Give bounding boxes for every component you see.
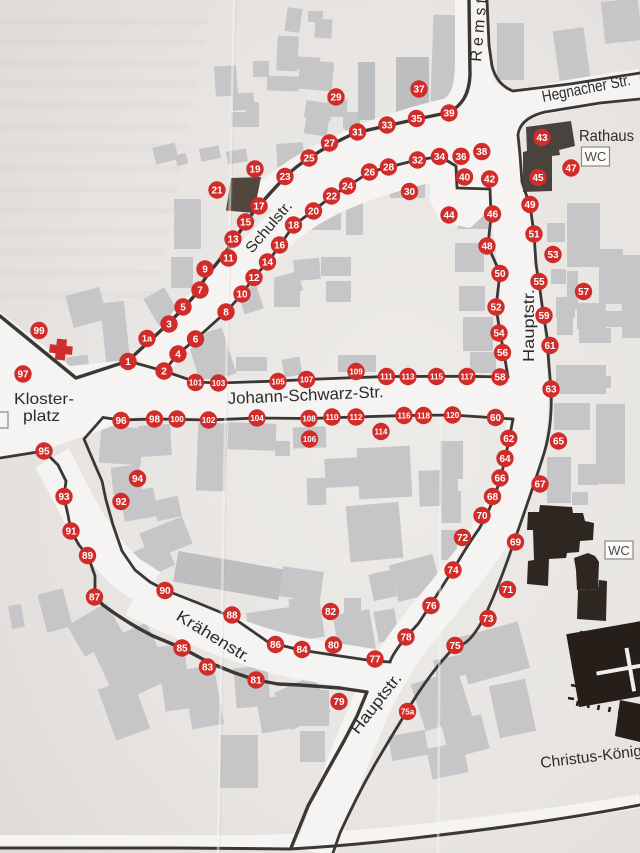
svg-text:27: 27 (324, 139, 336, 150)
svg-text:29: 29 (330, 93, 342, 104)
svg-text:42: 42 (484, 175, 496, 186)
svg-text:116: 116 (398, 411, 411, 420)
svg-text:3: 3 (166, 320, 172, 331)
svg-text:Rathaus: Rathaus (579, 128, 634, 145)
svg-text:2: 2 (161, 367, 167, 378)
svg-text:89: 89 (82, 551, 94, 562)
svg-text:36: 36 (455, 152, 467, 163)
svg-text:5: 5 (180, 303, 186, 314)
svg-text:13: 13 (227, 235, 239, 246)
svg-text:66: 66 (494, 473, 506, 484)
svg-text:115: 115 (430, 372, 443, 381)
svg-text:95: 95 (38, 447, 50, 458)
svg-text:104: 104 (250, 414, 264, 423)
svg-text:55: 55 (533, 277, 545, 288)
svg-text:56: 56 (497, 348, 509, 359)
svg-text:33: 33 (381, 121, 393, 132)
svg-text:83: 83 (202, 663, 214, 674)
svg-text:73: 73 (482, 614, 494, 625)
svg-text:112: 112 (350, 413, 363, 422)
svg-text:71: 71 (502, 585, 514, 596)
svg-text:Kloster-: Kloster- (14, 391, 74, 408)
svg-text:40: 40 (459, 173, 471, 184)
svg-text:94: 94 (132, 474, 144, 485)
svg-text:14: 14 (262, 258, 274, 269)
svg-text:39: 39 (443, 109, 455, 120)
svg-text:109: 109 (349, 367, 363, 376)
svg-text:30: 30 (404, 187, 416, 198)
svg-text:80: 80 (328, 641, 340, 652)
svg-text:110: 110 (326, 413, 339, 422)
svg-text:98: 98 (149, 415, 161, 426)
svg-text:24: 24 (342, 182, 354, 193)
svg-text:23: 23 (279, 172, 291, 183)
svg-text:53: 53 (547, 250, 559, 261)
svg-text:47: 47 (565, 164, 577, 175)
svg-text:platz: platz (23, 408, 60, 425)
svg-text:117: 117 (461, 372, 474, 381)
svg-text:59: 59 (538, 311, 550, 322)
svg-text:78: 78 (400, 633, 412, 644)
svg-text:51: 51 (528, 230, 540, 241)
svg-text:37: 37 (413, 85, 425, 96)
svg-text:4: 4 (175, 350, 181, 361)
svg-text:69: 69 (510, 538, 522, 549)
svg-text:32: 32 (412, 156, 424, 167)
svg-text:75: 75 (449, 641, 461, 652)
svg-text:120: 120 (446, 411, 460, 420)
svg-text:58: 58 (494, 373, 506, 384)
svg-text:61: 61 (544, 341, 556, 352)
svg-text:68: 68 (487, 492, 499, 503)
svg-text:10: 10 (236, 290, 248, 301)
svg-text:25: 25 (303, 154, 315, 165)
svg-text:17: 17 (253, 202, 265, 213)
svg-text:81: 81 (250, 676, 262, 687)
svg-text:113: 113 (402, 372, 415, 381)
svg-text:11: 11 (223, 254, 234, 265)
svg-text:19: 19 (249, 165, 261, 176)
svg-text:21: 21 (211, 186, 223, 197)
svg-text:Hauptstr.: Hauptstr. (521, 289, 538, 362)
svg-text:76: 76 (425, 601, 437, 612)
svg-text:102: 102 (202, 416, 216, 425)
svg-text:64: 64 (499, 454, 511, 465)
svg-text:114: 114 (375, 427, 388, 436)
svg-text:28: 28 (383, 163, 395, 174)
svg-text:111: 111 (380, 372, 393, 381)
svg-text:103: 103 (212, 379, 226, 388)
svg-text:87: 87 (89, 593, 101, 604)
svg-text:106: 106 (303, 435, 317, 444)
svg-text:85: 85 (176, 644, 188, 655)
svg-text:34: 34 (434, 152, 446, 163)
svg-text:70: 70 (476, 511, 488, 522)
svg-text:49: 49 (524, 200, 536, 211)
svg-text:54: 54 (493, 329, 505, 340)
svg-text:65: 65 (553, 437, 565, 448)
svg-text:79: 79 (333, 697, 345, 708)
svg-text:72: 72 (457, 533, 469, 544)
svg-text:52: 52 (490, 303, 502, 314)
svg-text:60: 60 (490, 413, 502, 424)
svg-text:75a: 75a (401, 707, 415, 716)
svg-text:26: 26 (364, 168, 376, 179)
svg-text:74: 74 (447, 566, 459, 577)
svg-text:16: 16 (274, 241, 286, 252)
svg-text:18: 18 (288, 221, 300, 232)
svg-text:1: 1 (125, 357, 131, 368)
svg-text:44: 44 (443, 211, 455, 222)
svg-text:99: 99 (33, 326, 45, 337)
svg-text:31: 31 (352, 128, 364, 139)
svg-text:62: 62 (503, 434, 515, 445)
svg-text:1a: 1a (142, 333, 153, 343)
svg-text:45: 45 (532, 173, 544, 184)
svg-text:97: 97 (17, 370, 29, 381)
svg-text:105: 105 (271, 377, 285, 386)
svg-text:22: 22 (326, 192, 338, 203)
svg-text:7: 7 (197, 286, 203, 297)
svg-text:9: 9 (202, 265, 208, 276)
svg-text:WC: WC (585, 149, 607, 164)
svg-text:101: 101 (189, 378, 203, 387)
svg-text:93: 93 (58, 492, 70, 503)
svg-text:48: 48 (481, 242, 493, 253)
svg-text:86: 86 (270, 640, 282, 651)
svg-text:67: 67 (534, 480, 546, 491)
svg-text:107: 107 (300, 375, 314, 384)
svg-text:108: 108 (302, 414, 316, 423)
svg-text:92: 92 (115, 497, 127, 508)
svg-text:118: 118 (417, 411, 430, 420)
svg-text:43: 43 (536, 133, 548, 144)
svg-text:6: 6 (193, 335, 199, 346)
svg-text:15: 15 (240, 218, 252, 229)
svg-text:63: 63 (545, 385, 557, 396)
svg-text:46: 46 (487, 210, 499, 221)
svg-text:91: 91 (65, 527, 77, 538)
svg-text:100: 100 (170, 415, 184, 424)
svg-text:50: 50 (494, 269, 506, 280)
svg-text:WC: WC (608, 543, 630, 558)
svg-text:88: 88 (226, 611, 238, 622)
svg-text:57: 57 (578, 287, 590, 298)
svg-text:84: 84 (296, 645, 308, 656)
svg-text:77: 77 (369, 655, 381, 666)
svg-text:12: 12 (248, 273, 260, 284)
svg-text:35: 35 (411, 114, 423, 125)
svg-text:90: 90 (159, 586, 171, 597)
svg-text:8: 8 (223, 308, 229, 319)
svg-text:20: 20 (308, 207, 320, 218)
svg-text:82: 82 (325, 607, 337, 618)
svg-text:38: 38 (476, 147, 488, 158)
svg-text:96: 96 (115, 416, 127, 427)
